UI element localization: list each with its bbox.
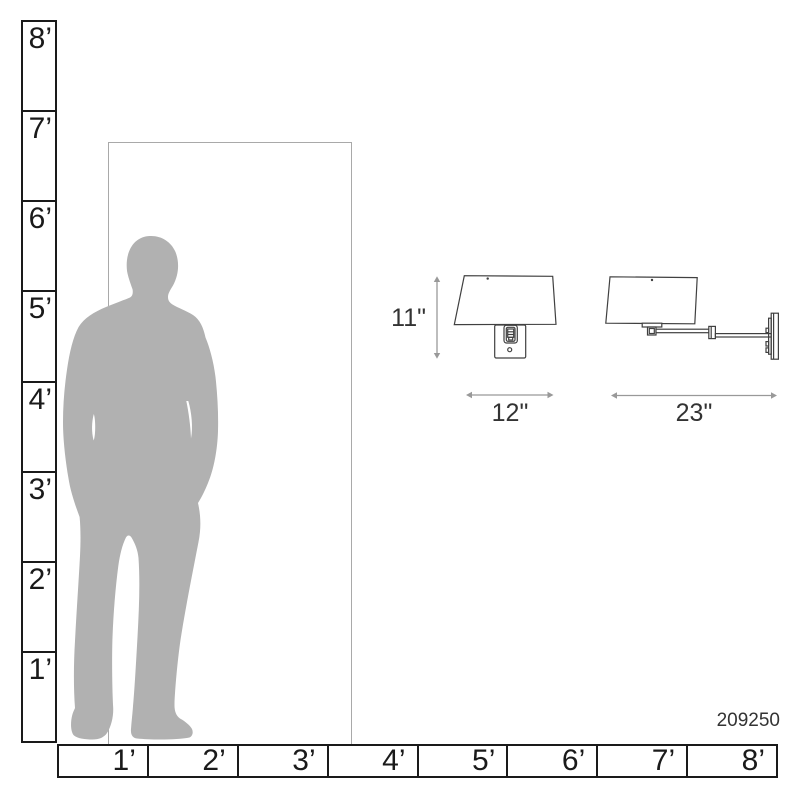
horizontal-ruler-segment: 6’ [508, 746, 598, 776]
ruler-tick-label: 3’ [29, 475, 52, 505]
extension-dimension-label: 23" [611, 401, 777, 426]
shade-seam-dot [651, 279, 653, 281]
swing-arm-elbow [709, 326, 716, 338]
vertical-ruler-segment: 8’ [23, 22, 55, 112]
vertical-ruler-segment: 6’ [23, 202, 55, 292]
vertical-ruler-segment: 4’ [23, 383, 55, 473]
horizontal-ruler: 1’ 2’ 3’ 4’ 5’ 6’ 7’ 8’ [57, 744, 778, 778]
ruler-tick-label: 2’ [202, 746, 225, 776]
swing-arm-rear [715, 334, 771, 337]
ruler-tick-label: 8’ [742, 746, 765, 776]
extension-dimension-arrow-icon [611, 392, 777, 398]
wall-plate-tab [766, 342, 769, 346]
vertical-ruler-segment: 1’ [23, 653, 55, 741]
vertical-ruler: 8’ 7’ 6’ 5’ 4’ 3’ 2’ 1’ [21, 20, 57, 743]
horizontal-ruler-segment: 8’ [688, 746, 776, 776]
lampshade-side [606, 277, 697, 324]
ruler-tick-label: 1’ [29, 655, 52, 685]
sconce-front-view [454, 276, 556, 358]
ruler-tick-label: 7’ [29, 114, 52, 144]
vertical-ruler-segment: 7’ [23, 112, 55, 202]
arrow-head-left [466, 392, 472, 398]
ruler-tick-label: 2’ [29, 565, 52, 595]
ruler-tick-label: 7’ [652, 746, 675, 776]
ruler-tick-label: 4’ [382, 746, 405, 776]
horizontal-ruler-segment: 4’ [329, 746, 419, 776]
swing-arm-front [656, 329, 709, 333]
ruler-tick-label: 6’ [562, 746, 585, 776]
scale-diagram: 8’ 7’ 6’ 5’ 4’ 3’ 2’ 1’ 1’ 2’ 3’ 4’ 5’ 6… [0, 0, 800, 800]
arrow-head-down [434, 353, 440, 359]
sconce-side-view [606, 277, 779, 359]
horizontal-ruler-segment: 2’ [149, 746, 239, 776]
ruler-tick-label: 4’ [29, 385, 52, 415]
arrow-head-up [434, 276, 440, 282]
ruler-tick-label: 5’ [29, 294, 52, 324]
height-dimension-label: 11" [376, 306, 426, 331]
wall-plate-tab [766, 348, 769, 353]
horizontal-ruler-segment: 5’ [419, 746, 509, 776]
vertical-ruler-segment: 2’ [23, 563, 55, 653]
person-silhouette [55, 230, 225, 744]
width-dimension-label: 12" [466, 401, 554, 426]
product-number: 209250 [660, 711, 780, 730]
ruler-tick-label: 5’ [472, 746, 495, 776]
shade-seam-dot [487, 277, 489, 279]
arrow-head-right [548, 392, 554, 398]
ruler-tick-label: 3’ [292, 746, 315, 776]
arrow-head-left [611, 392, 617, 398]
ruler-tick-label: 6’ [29, 204, 52, 234]
shade-bracket-inner [649, 329, 654, 334]
horizontal-ruler-segment: 7’ [598, 746, 688, 776]
lampshade-front [454, 276, 556, 325]
wall-plate-tab [766, 328, 769, 332]
ruler-tick-label: 1’ [113, 746, 136, 776]
arrow-head-right [771, 392, 777, 398]
horizontal-ruler-segment: 3’ [239, 746, 329, 776]
vertical-ruler-segment: 3’ [23, 473, 55, 563]
height-dimension-arrow-icon [434, 276, 440, 358]
sconce-drawings [380, 258, 790, 408]
vertical-ruler-segment: 5’ [23, 292, 55, 382]
width-dimension-arrow-icon [466, 392, 554, 398]
wall-plate-side [771, 313, 778, 359]
ruler-tick-label: 8’ [29, 24, 52, 54]
person-silhouette-shape [63, 236, 218, 740]
horizontal-ruler-segment: 1’ [59, 746, 149, 776]
